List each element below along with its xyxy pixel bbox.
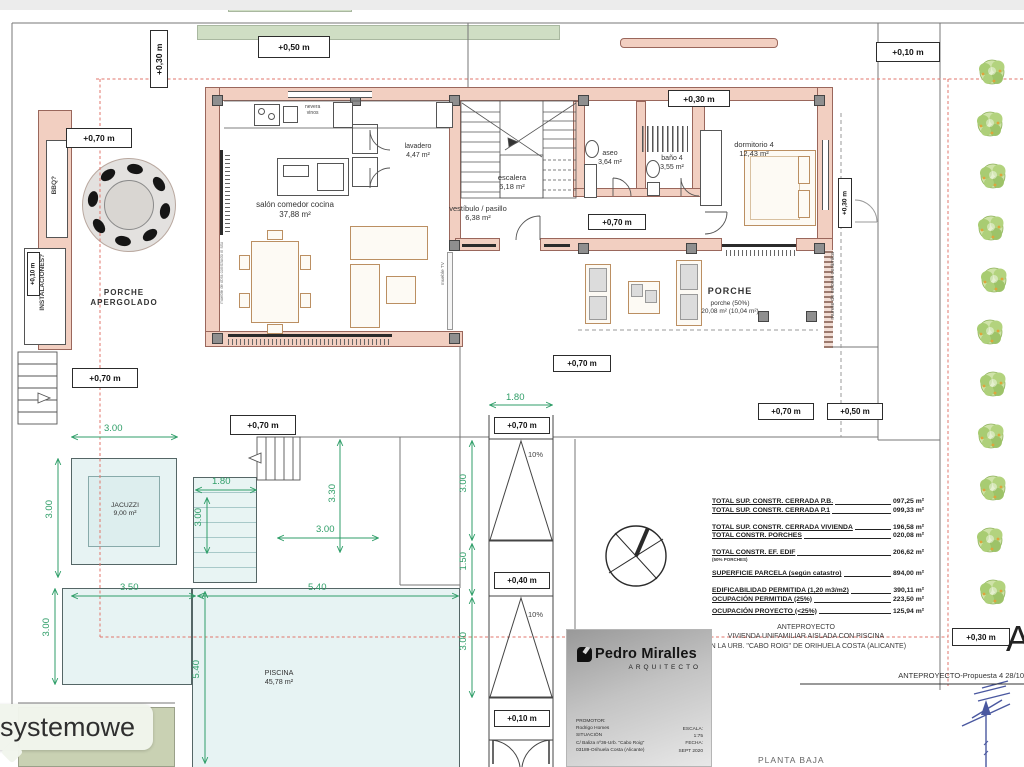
dim-label: 3.00 — [458, 474, 469, 493]
round-table-top — [104, 180, 154, 230]
column — [212, 333, 223, 344]
note-murete: murete de celosía cerámica — [830, 252, 836, 320]
leader-line — [814, 602, 891, 603]
leader-line — [844, 576, 891, 577]
hob-unit — [254, 104, 280, 126]
room-name: PORCHE — [660, 286, 800, 297]
dining-table — [251, 241, 299, 323]
cushion — [631, 284, 643, 297]
column — [212, 95, 223, 106]
note-nevera: nevera vinos — [305, 104, 320, 116]
window-dorm-east — [822, 140, 829, 210]
room-label-dormitorio4: dormitorio 4 12,43 m² — [712, 140, 796, 159]
corner-letter: A — [1006, 618, 1024, 660]
table-row: SUPERFICIE PARCELA (según catastro) 894,… — [712, 570, 924, 579]
level-box: +0,70 m — [588, 214, 646, 230]
studio-logo-icon — [577, 647, 592, 662]
room-name: escalera — [482, 173, 542, 182]
room-area: 12,43 m² — [712, 149, 796, 158]
room-label-escalera: escalera 6,18 m² — [482, 173, 542, 192]
room-label-salon: salón comedor cocina 37,88 m² — [235, 200, 355, 220]
row-value: 125,94 m² — [893, 608, 924, 617]
escala-value: 1:75 — [679, 733, 703, 740]
dining-chair — [239, 293, 250, 308]
room-name: baño 4 — [648, 155, 696, 164]
level-box: +0,50 m — [827, 403, 883, 420]
row-value: 390,11 m² — [893, 587, 924, 596]
room-label-jacuzzi: JACUZZI 9,00 m² — [96, 502, 154, 519]
row-label: OCUPACIÓN PROYECTO (<25%) — [712, 608, 817, 617]
leader-line — [835, 504, 891, 505]
room-area: 37,88 m² — [235, 210, 355, 220]
row-label: TOTAL SUP. CONSTR. CERRADA P.B. — [712, 498, 833, 507]
room-label-porche: PORCHE porche (50%) 20,08 m² (10,04 m²) — [660, 286, 800, 317]
escala-label: ESCALA: — [679, 726, 703, 733]
level-box: +0,10 m — [876, 42, 940, 62]
external-stairs — [18, 352, 57, 424]
row-label: SUPERFICIE PARCELA (según catastro) — [712, 570, 842, 579]
column — [686, 243, 697, 254]
room-area: 3,55 m² — [648, 164, 696, 173]
dim-label: 1.50 — [458, 552, 469, 571]
cushion — [589, 268, 607, 292]
fridge — [333, 102, 353, 128]
tv-cabinet — [447, 252, 453, 330]
note-mueble-tv: mueble TV — [441, 262, 446, 285]
level-box: +0,70 m — [553, 355, 611, 372]
video-caption: systemowe — [0, 704, 153, 750]
leader-line — [855, 529, 891, 530]
column — [814, 95, 825, 106]
column — [578, 95, 589, 106]
column — [449, 333, 460, 344]
laundry-machine — [352, 124, 378, 154]
slope-label: 10% — [528, 450, 543, 459]
dim-label: 3.30 — [327, 484, 338, 503]
leader-line — [832, 513, 891, 514]
table-row: TOTAL SUP. CONSTR. CERRADA P.1 099,33 m² — [712, 507, 924, 516]
leader-line — [851, 593, 892, 594]
hob-burner — [268, 113, 275, 120]
sofa — [350, 226, 428, 260]
window-hall-south — [544, 244, 570, 247]
table-row: TOTAL SUP. CONSTR. CERRADA P.B. 097,25 m… — [712, 498, 924, 507]
dim-label: 1.80 — [506, 392, 525, 403]
studio-role: ARQUITECTO — [567, 664, 701, 671]
proposal-note: ANTEPROYECTO-Propuesta 4 28/10 — [800, 671, 1024, 680]
garden-stairs — [249, 437, 300, 480]
room-name: PISCINA — [246, 668, 312, 677]
row-label: TOTAL SUP. CONSTR. CERRADA P.1 — [712, 507, 830, 516]
level-box: +0,40 m — [494, 572, 550, 589]
trees — [977, 60, 1007, 604]
leader-line — [819, 613, 891, 614]
column — [806, 311, 817, 322]
sink — [647, 182, 660, 196]
dining-chair — [239, 255, 250, 270]
title-block-info: PROMOTOR: Rodrigo Homes SITUACIÓN C/ Bal… — [576, 718, 703, 754]
island-sink — [317, 163, 344, 191]
row-label: TOTAL SUP. CONSTR. CERRADA VIVIENDA — [712, 524, 853, 533]
level-box: +0,70 m — [66, 128, 132, 148]
pillow — [798, 190, 810, 218]
room-name: PORCHE — [66, 288, 182, 298]
level-box: +0,30 m — [838, 178, 852, 228]
compass-symbol — [606, 526, 666, 586]
dim-label: 1.80 — [212, 476, 231, 487]
fecha-label: FECHA: — [679, 740, 703, 747]
slope-label: 10% — [528, 610, 543, 619]
shower-hatch — [642, 126, 688, 152]
dim-label: 3.00 — [44, 500, 55, 519]
dim-label: 3.50 — [120, 582, 139, 593]
row-value: 196,58 m² — [893, 524, 924, 533]
promotor-label: PROMOTOR: — [576, 718, 703, 725]
dim-label: 3.00 — [41, 618, 52, 637]
dim-label: 3.00 — [458, 632, 469, 651]
column — [578, 243, 589, 254]
row-value: 099,33 m² — [893, 507, 924, 516]
room-label-bano4: baño 4 3,55 m² — [648, 155, 696, 173]
porche-pct: porche (50%) — [660, 300, 800, 308]
row-label: EDIFICABILIDAD PERMITIDA (1,20 m3/m2) — [712, 587, 849, 596]
room-label-piscina: PISCINA 45,78 m² — [246, 668, 312, 686]
studio-name: Pedro Miralles — [595, 646, 697, 662]
sink-unit — [283, 106, 298, 123]
row-label: OCUPACIÓN PERMITIDA (25%) — [712, 596, 812, 605]
letterbox-strip — [0, 0, 1024, 10]
dining-chair — [300, 293, 311, 308]
wall-west — [205, 87, 220, 347]
note-line: vinos — [305, 110, 320, 116]
window-salon-south — [228, 334, 392, 337]
title-block: Pedro Miralles ARQUITECTO PROMOTOR: Rodr… — [566, 629, 712, 767]
level-box: +0,30 m — [952, 628, 1010, 646]
dining-chair — [267, 230, 283, 240]
level-box: +0,30 m — [150, 30, 168, 88]
room-label-lavadero: lavadero 4,47 m² — [385, 143, 451, 161]
room-area: 4,47 m² — [385, 152, 451, 161]
dim-label: 5.40 — [191, 660, 202, 679]
hob-burner — [258, 108, 265, 115]
dining-chair — [267, 324, 283, 334]
column — [449, 240, 460, 251]
cushion — [589, 296, 607, 320]
room-area: 9,00 m² — [96, 510, 154, 518]
room-label-porche-apergolado: PORCHE APERGOLADO — [66, 288, 182, 308]
sofa-chaise — [350, 264, 380, 328]
pergola-beam — [620, 38, 778, 48]
room-area: 20,08 m² (10,04 m²) — [660, 308, 800, 316]
dim-label: 3.00 — [316, 524, 335, 535]
level-box: +0,30 m — [668, 90, 730, 107]
pool-left-arm — [62, 588, 192, 685]
aseo-bench — [584, 164, 597, 198]
row-label: TOTAL CONSTR. PORCHES — [712, 532, 802, 541]
row-value: 097,25 m² — [893, 498, 924, 507]
room-area: 6,38 m² — [430, 213, 526, 222]
room-name: vestíbulo / pasillo — [430, 204, 526, 213]
cushion — [645, 290, 657, 303]
area-summary-table: TOTAL SUP. CONSTR. CERRADA P.B. 097,25 m… — [712, 498, 924, 616]
dim-label: 3.00 — [193, 508, 204, 527]
dim-label: 5.40 — [308, 582, 327, 593]
room-area: 45,78 m² — [246, 677, 312, 686]
row-value: 894,00 m² — [893, 570, 924, 579]
table-row: EDIFICABILIDAD PERMITIDA (1,20 m3/m2) 39… — [712, 587, 924, 596]
island-hob — [283, 165, 309, 177]
row-value: 020,08 m² — [893, 532, 924, 541]
table-row: TOTAL SUP. CONSTR. CERRADA VIVIENDA 196,… — [712, 524, 924, 533]
level-box: +0,70 m — [758, 403, 814, 420]
room-area: 3,64 m² — [586, 159, 634, 168]
room-name: dormitorio 4 — [712, 140, 796, 149]
window-kitchen-north — [288, 91, 372, 98]
room-label-vestibulo: vestíbulo / pasillo 6,38 m² — [430, 204, 526, 223]
studio-logo: Pedro Miralles — [577, 646, 703, 662]
note-bbq: BBQ? — [51, 176, 58, 194]
plan-name: PLANTA BAJA — [758, 755, 825, 765]
row-value: 223,50 m² — [893, 596, 924, 605]
floor-plan-screenshot: +0,30 m +0,50 m +0,10 m +0,70 m +0,30 m … — [0, 0, 1024, 767]
column — [814, 243, 825, 254]
note-instalaciones: INSTALACIONES? — [39, 254, 46, 311]
window-hall-south — [462, 244, 496, 247]
room-name: JACUZZI — [96, 502, 154, 510]
level-box: +0,70 m — [230, 415, 296, 435]
laundry-machine — [352, 157, 378, 187]
note-mueble-obra: mueble de obra construido in situ — [219, 242, 224, 304]
window-sill-hatch — [225, 152, 230, 232]
pool-main — [192, 588, 460, 767]
level-box: +0,70 m — [494, 417, 550, 434]
room-name: aseo — [586, 150, 634, 159]
room-label-aseo: aseo 3,64 m² — [586, 150, 634, 168]
window-salon-west — [220, 150, 223, 235]
pool-steps — [193, 477, 257, 583]
window-sill-hatch — [726, 250, 796, 256]
fecha-value: SEPT 2020 — [679, 748, 703, 755]
level-box: +0,50 m — [258, 36, 330, 58]
scale-date-column: ESCALA: 1:75 FECHA: SEPT 2020 — [679, 726, 703, 755]
leader-line — [804, 538, 891, 539]
room-area: 6,18 m² — [482, 182, 542, 191]
level-box: +0,10 m — [494, 710, 550, 727]
level-box: +0,70 m — [72, 368, 138, 388]
room-name: APERGOLADO — [66, 298, 182, 308]
bed-mattress — [750, 156, 800, 220]
north-arrow-icon — [962, 681, 1010, 767]
row-value: 206,62 m² — [893, 549, 924, 558]
dim-label: 3.00 — [104, 423, 123, 434]
table-row: OCUPACIÓN PROYECTO (<25%) 125,94 m² — [712, 608, 924, 617]
pouf — [386, 276, 416, 304]
room-name: lavadero — [385, 143, 451, 152]
dining-chair — [300, 255, 311, 270]
room-name: salón comedor cocina — [235, 200, 355, 210]
pantry-column — [436, 102, 453, 128]
table-row: TOTAL CONSTR. PORCHES 020,08 m² — [712, 532, 924, 541]
window-dorm-south — [722, 244, 796, 247]
table-row: OCUPACIÓN PERMITIDA (25%) 223,50 m² — [712, 596, 924, 605]
leader-line — [797, 555, 891, 556]
hedge-strip — [197, 25, 560, 40]
pillow — [798, 156, 810, 184]
window-sill-hatch — [228, 339, 392, 345]
